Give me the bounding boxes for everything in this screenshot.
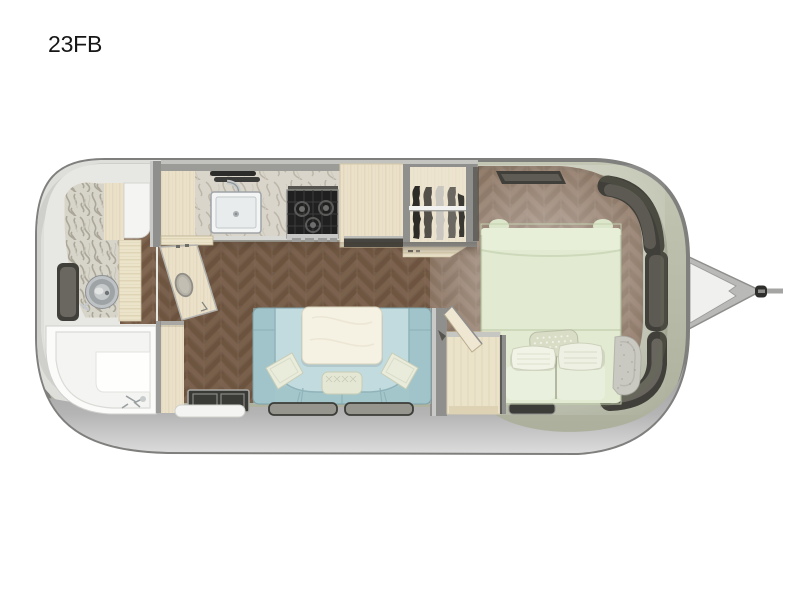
svg-text:23FB: 23FB	[48, 31, 102, 57]
